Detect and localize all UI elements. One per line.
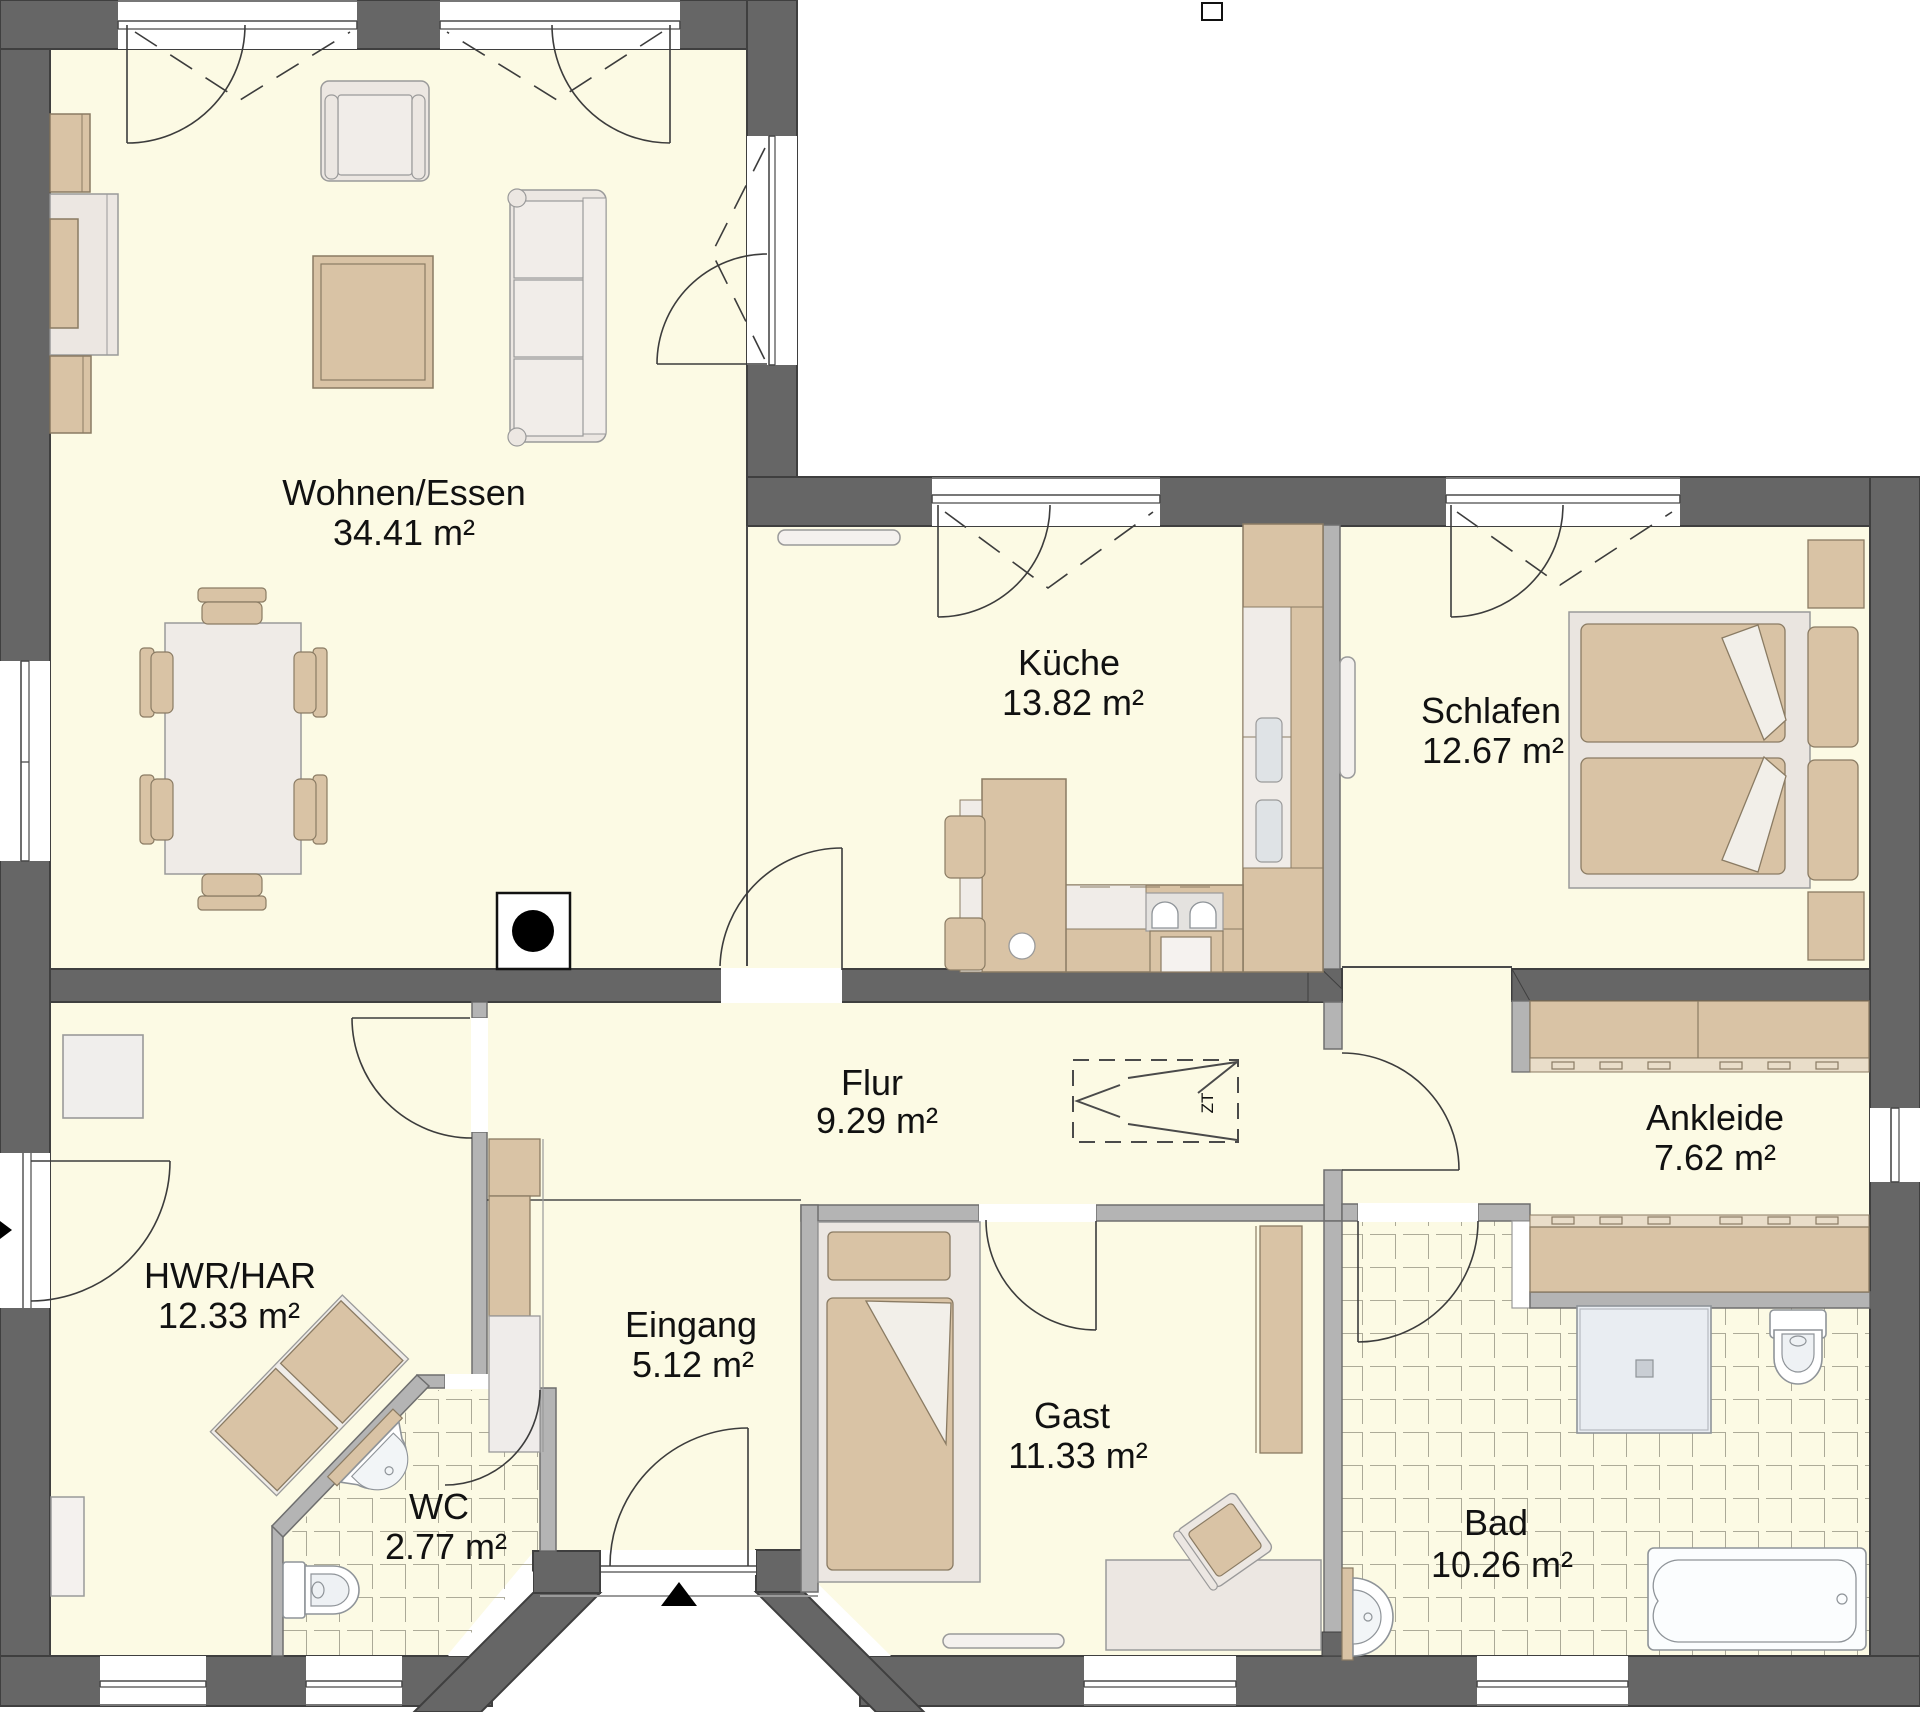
- svg-text:ZT: ZT: [1198, 1093, 1217, 1114]
- svg-text:2.77 m²: 2.77 m²: [385, 1526, 507, 1567]
- svg-text:Küche: Küche: [1018, 642, 1120, 683]
- svg-text:Gast: Gast: [1034, 1395, 1110, 1436]
- svg-text:12.33 m²: 12.33 m²: [158, 1295, 300, 1336]
- svg-text:12.67 m²: 12.67 m²: [1422, 730, 1564, 771]
- svg-text:11.33 m²: 11.33 m²: [1008, 1435, 1147, 1476]
- svg-text:7.62 m²: 7.62 m²: [1654, 1137, 1776, 1178]
- svg-text:WC: WC: [409, 1486, 469, 1527]
- svg-text:Eingang: Eingang: [625, 1304, 757, 1345]
- svg-text:Ankleide: Ankleide: [1646, 1097, 1784, 1138]
- svg-text:Schlafen: Schlafen: [1421, 690, 1561, 731]
- svg-text:9.29 m²: 9.29 m²: [816, 1100, 938, 1141]
- svg-text:34.41 m²: 34.41 m²: [333, 512, 475, 553]
- svg-text:Wohnen/Essen: Wohnen/Essen: [282, 472, 526, 513]
- svg-text:Bad: Bad: [1464, 1502, 1528, 1543]
- svg-text:Flur: Flur: [841, 1062, 903, 1103]
- svg-text:HWR/HAR: HWR/HAR: [144, 1255, 316, 1296]
- svg-text:10.26 m²: 10.26 m²: [1431, 1544, 1573, 1585]
- svg-text:13.82 m²: 13.82 m²: [1002, 682, 1144, 723]
- svg-text:5.12 m²: 5.12 m²: [632, 1344, 754, 1385]
